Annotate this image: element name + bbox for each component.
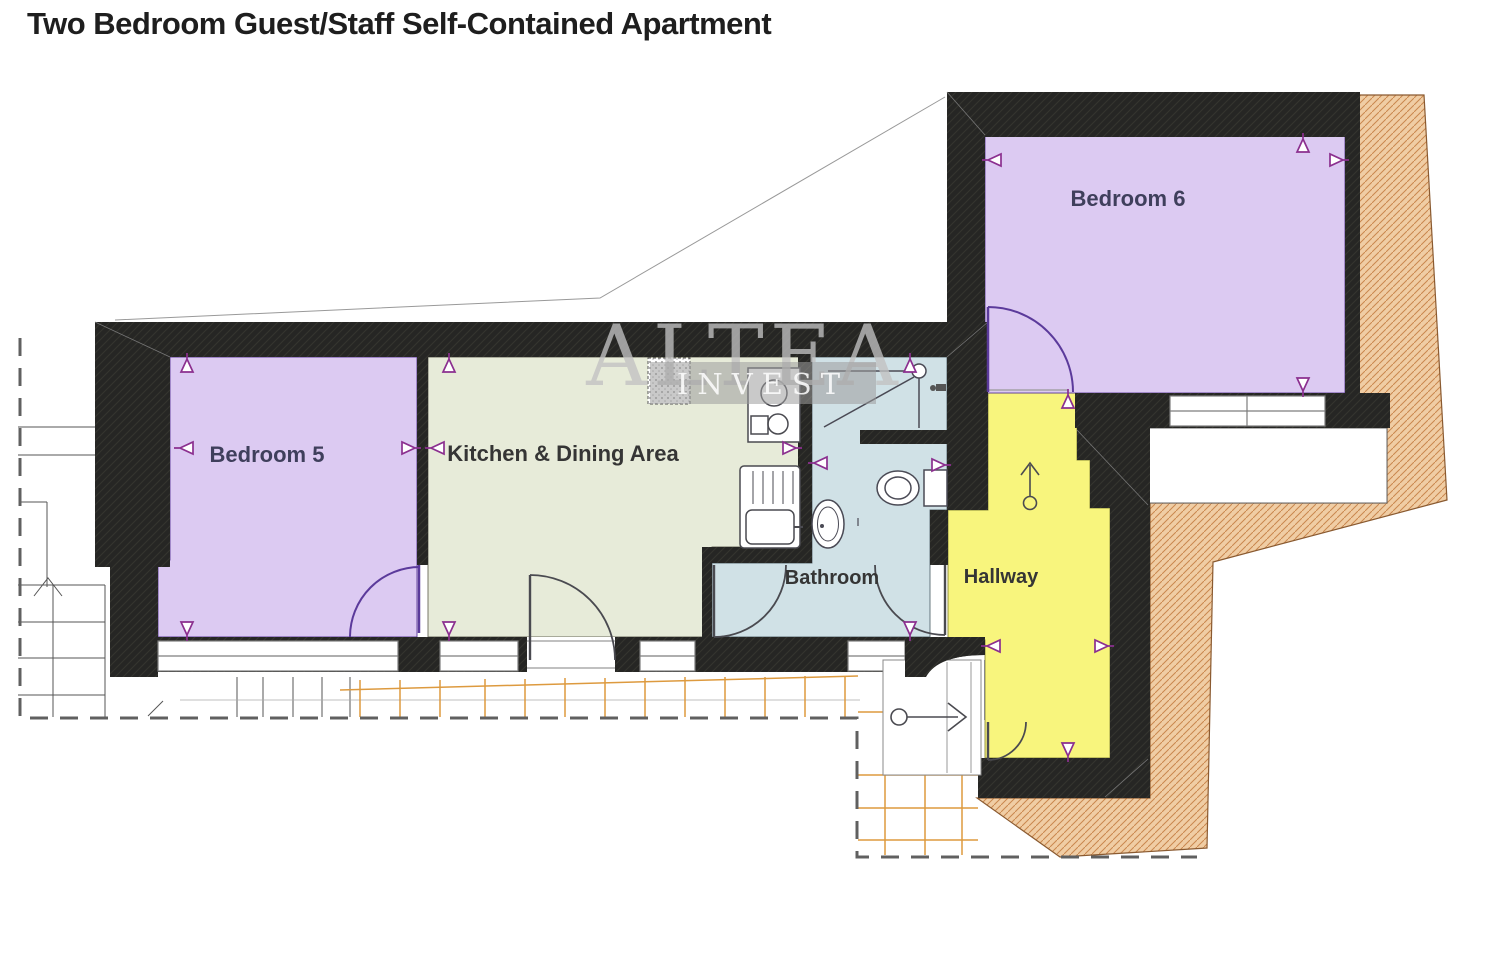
room-bedroom5-floor — [158, 357, 417, 637]
window-kitchen-2 — [640, 641, 695, 671]
watermark-invest: INVEST — [677, 367, 849, 401]
room-bedroom6-floor — [985, 135, 1345, 393]
hallway-label: Hallway — [964, 566, 1039, 588]
window-bedroom6 — [1170, 396, 1325, 426]
pergola-grid — [340, 675, 978, 855]
toilet-icon — [877, 470, 947, 506]
bedroom6-label: Bedroom 6 — [1071, 186, 1186, 211]
floorplan-drawing: Bedroom 5 Kitchen & Dining Area Bathroom… — [0, 0, 1500, 974]
kitchen-label: Kitchen & Dining Area — [447, 441, 679, 466]
lightwell-recess — [1148, 428, 1387, 503]
window-bedroom5 — [158, 641, 398, 671]
floorplan-page: Two Bedroom Guest/Staff Self-Contained A… — [0, 0, 1500, 974]
watermark: ALTEA INVEST — [585, 307, 904, 405]
sink-icon — [740, 466, 803, 548]
bathroom-label: Bathroom — [785, 567, 879, 589]
kitchen-door-threshold — [527, 637, 615, 672]
window-kitchen-1 — [440, 641, 518, 671]
entrance-vestibule — [883, 660, 985, 775]
bedroom5-label: Bedroom 5 — [210, 442, 325, 467]
exterior-roof-line — [115, 97, 945, 320]
